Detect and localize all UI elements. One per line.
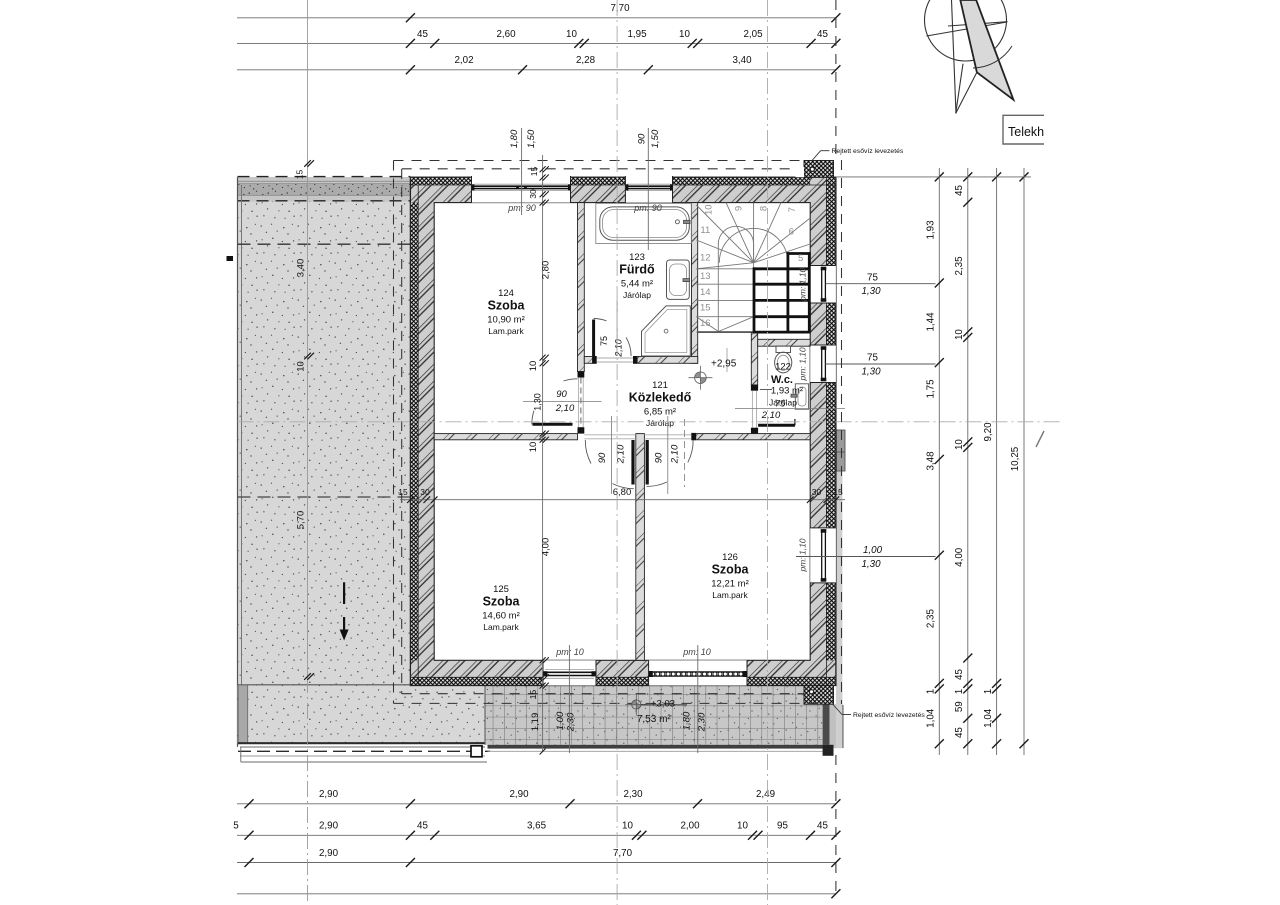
svg-text:15: 15	[529, 167, 539, 177]
svg-text:2,30: 2,30	[623, 789, 643, 800]
svg-text:2,90: 2,90	[509, 789, 529, 800]
svg-text:2,90: 2,90	[319, 821, 339, 832]
svg-text:15: 15	[528, 690, 538, 700]
svg-text:1,00: 1,00	[555, 711, 566, 730]
svg-text:45: 45	[954, 727, 965, 738]
svg-text:45: 45	[817, 821, 828, 832]
svg-text:1,30: 1,30	[861, 286, 881, 297]
svg-text:Szoba: Szoba	[712, 563, 750, 577]
svg-text:10: 10	[954, 439, 965, 450]
svg-text:1,80: 1,80	[509, 129, 520, 148]
svg-text:15: 15	[398, 487, 408, 497]
svg-text:1,50: 1,50	[650, 129, 661, 148]
svg-text:6,85 m²: 6,85 m²	[644, 407, 676, 418]
svg-text:1,50: 1,50	[526, 129, 537, 148]
svg-text:14,60 m²: 14,60 m²	[482, 611, 520, 622]
svg-text:90: 90	[637, 133, 648, 144]
svg-text:3,48: 3,48	[926, 451, 937, 471]
svg-text:+2,95: +2,95	[711, 359, 737, 370]
svg-text:59: 59	[954, 701, 965, 712]
svg-text:30: 30	[812, 487, 822, 497]
svg-text:3,40: 3,40	[732, 55, 752, 66]
svg-text:2,90: 2,90	[319, 848, 339, 859]
svg-text:2,35: 2,35	[954, 256, 965, 276]
svg-text:Fürdő: Fürdő	[619, 263, 655, 277]
svg-text:pm: 1,10: pm: 1,10	[798, 538, 808, 572]
svg-text:4,00: 4,00	[954, 547, 965, 567]
svg-text:10: 10	[528, 442, 539, 453]
svg-text:14: 14	[700, 287, 711, 298]
svg-text:7,53 m²: 7,53 m²	[637, 714, 672, 725]
svg-text:1,04: 1,04	[926, 708, 937, 728]
svg-text:2,28: 2,28	[576, 55, 596, 66]
svg-text:1,75: 1,75	[926, 379, 937, 399]
svg-text:Lam.park: Lam.park	[712, 590, 748, 600]
svg-text:5,44 m²: 5,44 m²	[621, 279, 653, 290]
svg-text:90: 90	[597, 452, 608, 463]
svg-text:6,80: 6,80	[613, 487, 632, 498]
svg-text:1,00: 1,00	[863, 545, 883, 556]
svg-text:2,35: 2,35	[926, 609, 937, 629]
svg-text:Közlekedő: Közlekedő	[629, 391, 692, 405]
svg-text:10,25: 10,25	[1010, 446, 1021, 471]
svg-text:122: 122	[775, 362, 791, 373]
svg-text:1: 1	[926, 689, 937, 694]
svg-text:10: 10	[737, 821, 748, 832]
svg-text:Szoba: Szoba	[483, 595, 521, 609]
svg-text:Szoba: Szoba	[488, 299, 526, 313]
svg-text:1,30: 1,30	[533, 393, 543, 411]
svg-text:2,10: 2,10	[555, 403, 575, 414]
svg-text:1,19: 1,19	[530, 713, 541, 732]
svg-text:45: 45	[817, 29, 828, 40]
svg-text:10: 10	[704, 204, 715, 215]
svg-text:45: 45	[417, 821, 428, 832]
svg-text:124: 124	[498, 288, 514, 299]
svg-text:121: 121	[652, 380, 668, 391]
svg-text:125: 125	[493, 584, 509, 595]
svg-text:pm: 90: pm: 90	[633, 203, 662, 213]
svg-text:6: 6	[789, 227, 794, 238]
svg-text:90: 90	[654, 452, 665, 463]
svg-text:Járólap: Járólap	[623, 290, 651, 300]
svg-text:30: 30	[420, 487, 430, 497]
svg-text:12: 12	[700, 252, 711, 263]
svg-text:13: 13	[700, 271, 711, 282]
svg-text:126: 126	[722, 552, 738, 563]
svg-text:Lam.park: Lam.park	[483, 622, 519, 632]
svg-text:2,10: 2,10	[614, 339, 624, 358]
svg-text:W.c.: W.c.	[771, 374, 793, 386]
svg-text:1,30: 1,30	[861, 559, 881, 570]
svg-text:45: 45	[954, 669, 965, 680]
svg-text:1,95: 1,95	[627, 29, 647, 40]
svg-text:2,02: 2,02	[454, 55, 473, 66]
svg-text:10: 10	[528, 361, 539, 372]
svg-text:1,93: 1,93	[926, 220, 937, 240]
svg-text:1,04: 1,04	[983, 708, 994, 728]
svg-text:pm: 10: pm: 10	[682, 647, 711, 657]
svg-text:16: 16	[700, 318, 711, 329]
svg-text:1,80: 1,80	[682, 711, 693, 730]
svg-text:2,49: 2,49	[756, 789, 775, 800]
svg-text:75: 75	[867, 272, 878, 283]
svg-text:1,30: 1,30	[861, 366, 881, 377]
svg-text:1: 1	[954, 689, 965, 694]
svg-text:10: 10	[954, 329, 965, 340]
svg-text:1,44: 1,44	[926, 312, 937, 332]
svg-text:10: 10	[296, 361, 307, 372]
svg-text:30: 30	[528, 189, 538, 199]
svg-text:10,90 m²: 10,90 m²	[487, 315, 525, 326]
svg-text:1: 1	[983, 689, 994, 694]
svg-text:15: 15	[700, 302, 711, 313]
svg-text:11: 11	[700, 225, 710, 236]
svg-text:2,00: 2,00	[680, 821, 700, 832]
svg-text:5,70: 5,70	[296, 511, 307, 530]
svg-text:5: 5	[233, 821, 239, 832]
svg-text:2,80: 2,80	[541, 261, 552, 280]
svg-text:75: 75	[599, 336, 609, 346]
svg-text:75: 75	[867, 353, 878, 364]
svg-text:2,10: 2,10	[670, 444, 681, 464]
svg-text:15: 15	[295, 170, 305, 180]
svg-text:1,93 m²: 1,93 m²	[771, 385, 803, 396]
svg-text:7: 7	[787, 207, 798, 212]
svg-text:Lam.park: Lam.park	[488, 326, 524, 336]
svg-text:10: 10	[566, 29, 577, 40]
svg-text:Telekh: Telekh	[1008, 125, 1044, 139]
svg-text:2,90: 2,90	[319, 789, 339, 800]
svg-text:pm: 1,10: pm: 1,10	[798, 347, 808, 381]
svg-text:10: 10	[622, 821, 633, 832]
svg-text:4,00: 4,00	[541, 538, 552, 557]
svg-text:12,21 m²: 12,21 m²	[711, 579, 749, 590]
svg-text:123: 123	[629, 252, 645, 263]
svg-text:Rejtett esővíz levezetés: Rejtett esővíz levezetés	[832, 148, 904, 155]
svg-text:Járólap: Járólap	[646, 418, 674, 428]
svg-text:9: 9	[734, 206, 745, 211]
svg-text:2,60: 2,60	[496, 29, 516, 40]
svg-text:+3,03: +3,03	[651, 698, 675, 709]
svg-text:Rejtett esővíz levezetés: Rejtett esővíz levezetés	[853, 712, 925, 719]
svg-text:95: 95	[777, 821, 788, 832]
svg-text:5: 5	[798, 253, 803, 264]
svg-text:10: 10	[679, 29, 690, 40]
svg-text:2,05: 2,05	[743, 29, 763, 40]
svg-text:7,70: 7,70	[613, 848, 633, 859]
svg-text:pm: 1,10: pm: 1,10	[798, 267, 808, 301]
svg-text:45: 45	[417, 29, 428, 40]
svg-text:9,20: 9,20	[983, 422, 994, 442]
svg-text:45: 45	[954, 185, 965, 196]
svg-text:3,65: 3,65	[527, 821, 547, 832]
svg-text:2,10: 2,10	[761, 410, 781, 421]
svg-text:75: 75	[775, 399, 786, 410]
svg-text:2,30: 2,30	[565, 712, 576, 732]
svg-text:90: 90	[556, 389, 567, 400]
svg-text:7,70: 7,70	[610, 3, 630, 14]
svg-text:3,40: 3,40	[296, 259, 307, 278]
